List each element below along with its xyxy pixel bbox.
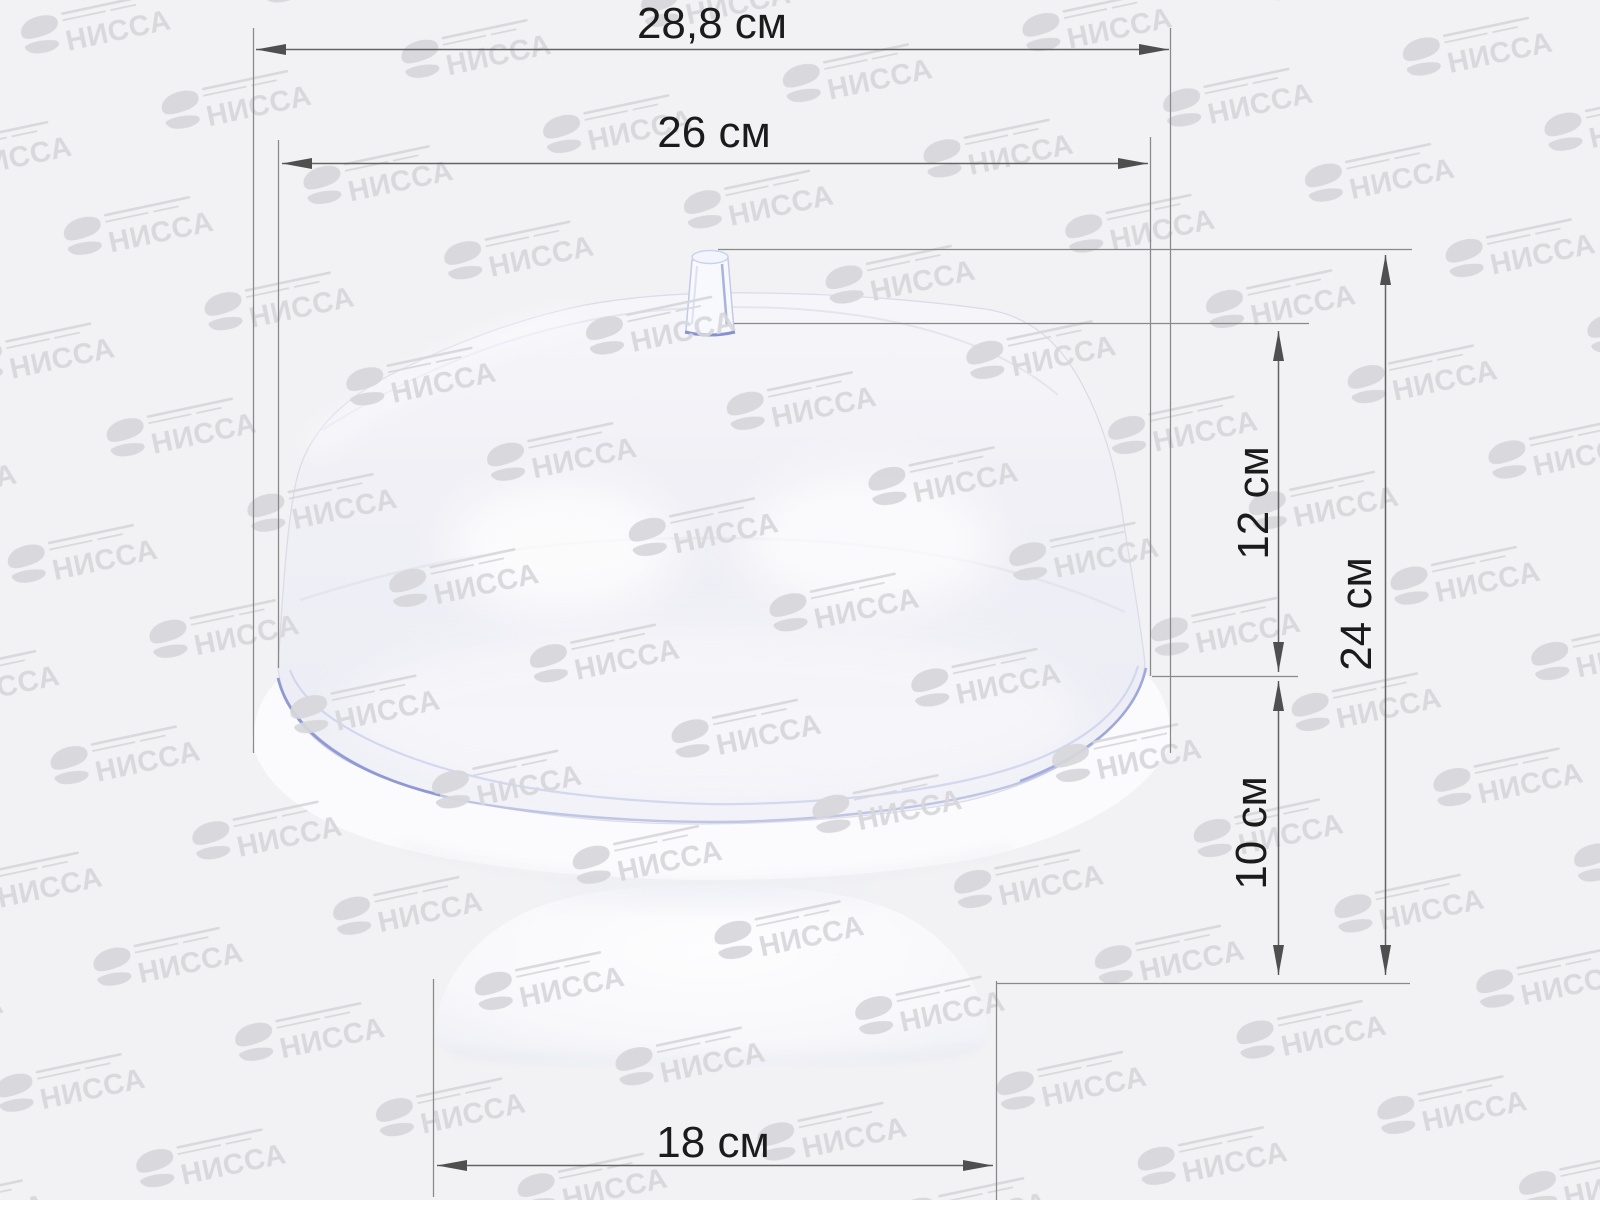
svg-text:10 см: 10 см (1227, 776, 1276, 889)
svg-text:24 см: 24 см (1332, 557, 1381, 670)
svg-text:26 см: 26 см (657, 108, 770, 157)
svg-text:18 см: 18 см (656, 1118, 769, 1167)
svg-text:28,8 см: 28,8 см (637, 0, 787, 48)
svg-text:12 см: 12 см (1229, 446, 1278, 559)
